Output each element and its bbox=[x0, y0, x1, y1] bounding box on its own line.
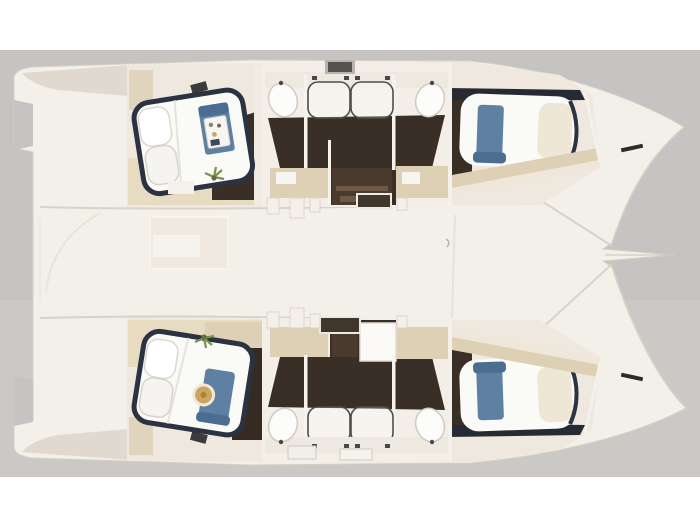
vanity-drawer bbox=[340, 449, 372, 460]
floor-mat bbox=[168, 181, 194, 194]
port-bathroom bbox=[262, 60, 450, 207]
aft-bed bbox=[132, 329, 255, 437]
cabin-bulkhead bbox=[254, 66, 262, 205]
port-hull bbox=[127, 60, 643, 207]
shower-tray bbox=[360, 323, 396, 361]
sink-faucet bbox=[279, 81, 283, 85]
starboard-hull bbox=[127, 318, 643, 463]
starboard-bathroom bbox=[262, 318, 450, 462]
aft-bed bbox=[132, 88, 255, 196]
shower-glass-left bbox=[308, 82, 350, 118]
cabin-bulkhead bbox=[448, 320, 452, 462]
pillow bbox=[537, 365, 574, 423]
pillow bbox=[143, 338, 180, 380]
stern-notch-bottom bbox=[14, 376, 33, 426]
deck-hatch-top bbox=[357, 194, 391, 208]
cabinet-top-item bbox=[276, 172, 296, 184]
roof-hatch bbox=[328, 62, 352, 72]
partition-wall bbox=[328, 140, 331, 205]
deck-hatch-bottom bbox=[320, 317, 360, 333]
pillow bbox=[138, 376, 175, 418]
floorplan-svg bbox=[0, 0, 700, 525]
stern-notch-top bbox=[14, 100, 33, 150]
shower-glass-right bbox=[351, 82, 393, 118]
starboard-aft-cabin bbox=[128, 320, 262, 455]
pillow bbox=[144, 144, 181, 186]
bed-runner-flare bbox=[473, 151, 506, 163]
cabinet-right bbox=[396, 327, 448, 359]
sink-faucet bbox=[430, 440, 434, 444]
pillow bbox=[137, 105, 174, 147]
cabinet-top-item bbox=[402, 172, 420, 184]
sink-faucet bbox=[279, 440, 283, 444]
vanity-drawer bbox=[288, 446, 316, 459]
pillow bbox=[537, 102, 574, 160]
bed-runner-flare bbox=[473, 361, 506, 373]
cockpit-table-top bbox=[153, 235, 200, 257]
sink-faucet bbox=[430, 81, 434, 85]
catamaran-floorplan-image bbox=[0, 0, 700, 525]
partition-wall bbox=[304, 75, 308, 170]
cabin-bulkhead bbox=[448, 63, 452, 205]
partition-wall bbox=[304, 355, 308, 450]
step bbox=[336, 186, 388, 191]
